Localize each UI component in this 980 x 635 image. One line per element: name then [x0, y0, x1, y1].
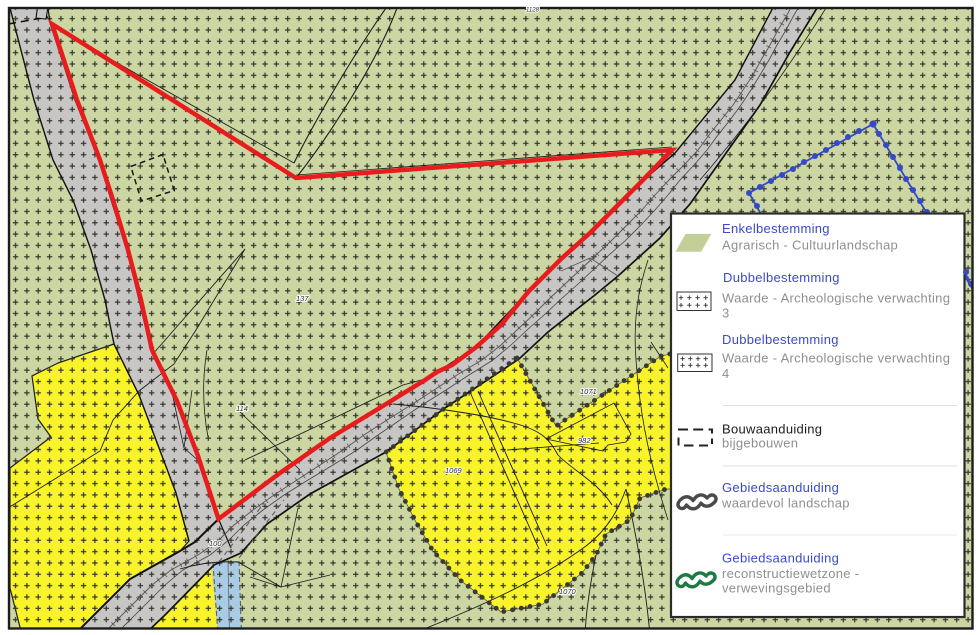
- svg-text:100: 100: [209, 539, 222, 548]
- svg-text:Dubbelbestemming: Dubbelbestemming: [722, 332, 839, 347]
- svg-text:982: 982: [578, 436, 591, 445]
- svg-text:Enkelbestemming: Enkelbestemming: [722, 221, 830, 236]
- svg-text:Waarde - Archeologische verwac: Waarde - Archeologische verwachting: [722, 351, 950, 366]
- svg-text:bijgebouwen: bijgebouwen: [722, 436, 798, 451]
- svg-text:waardevol landschap: waardevol landschap: [721, 496, 850, 511]
- svg-text:Gebiedsaanduiding: Gebiedsaanduiding: [722, 480, 839, 495]
- svg-text:114: 114: [236, 404, 248, 413]
- svg-text:Bouwaanduiding: Bouwaanduiding: [722, 422, 822, 437]
- svg-text:Waarde - Archeologische verwac: Waarde - Archeologische verwachting: [722, 291, 950, 306]
- svg-text:1069: 1069: [445, 466, 463, 475]
- svg-text:Agrarisch - Cultuurlandschap: Agrarisch - Cultuurlandschap: [722, 238, 898, 253]
- svg-text:137: 137: [296, 294, 309, 303]
- svg-text:3: 3: [722, 306, 730, 321]
- svg-text:Gebiedsaanduiding: Gebiedsaanduiding: [722, 551, 839, 566]
- svg-text:Dubbelbestemming: Dubbelbestemming: [723, 270, 840, 285]
- svg-text:4: 4: [722, 366, 730, 381]
- svg-text:1128: 1128: [526, 8, 540, 14]
- svg-text:1070: 1070: [559, 587, 577, 596]
- svg-text:reconstructiewetzone -: reconstructiewetzone -: [722, 566, 859, 581]
- svg-text:verwevingsgebied: verwevingsgebied: [722, 581, 831, 596]
- svg-text:1071: 1071: [580, 387, 597, 396]
